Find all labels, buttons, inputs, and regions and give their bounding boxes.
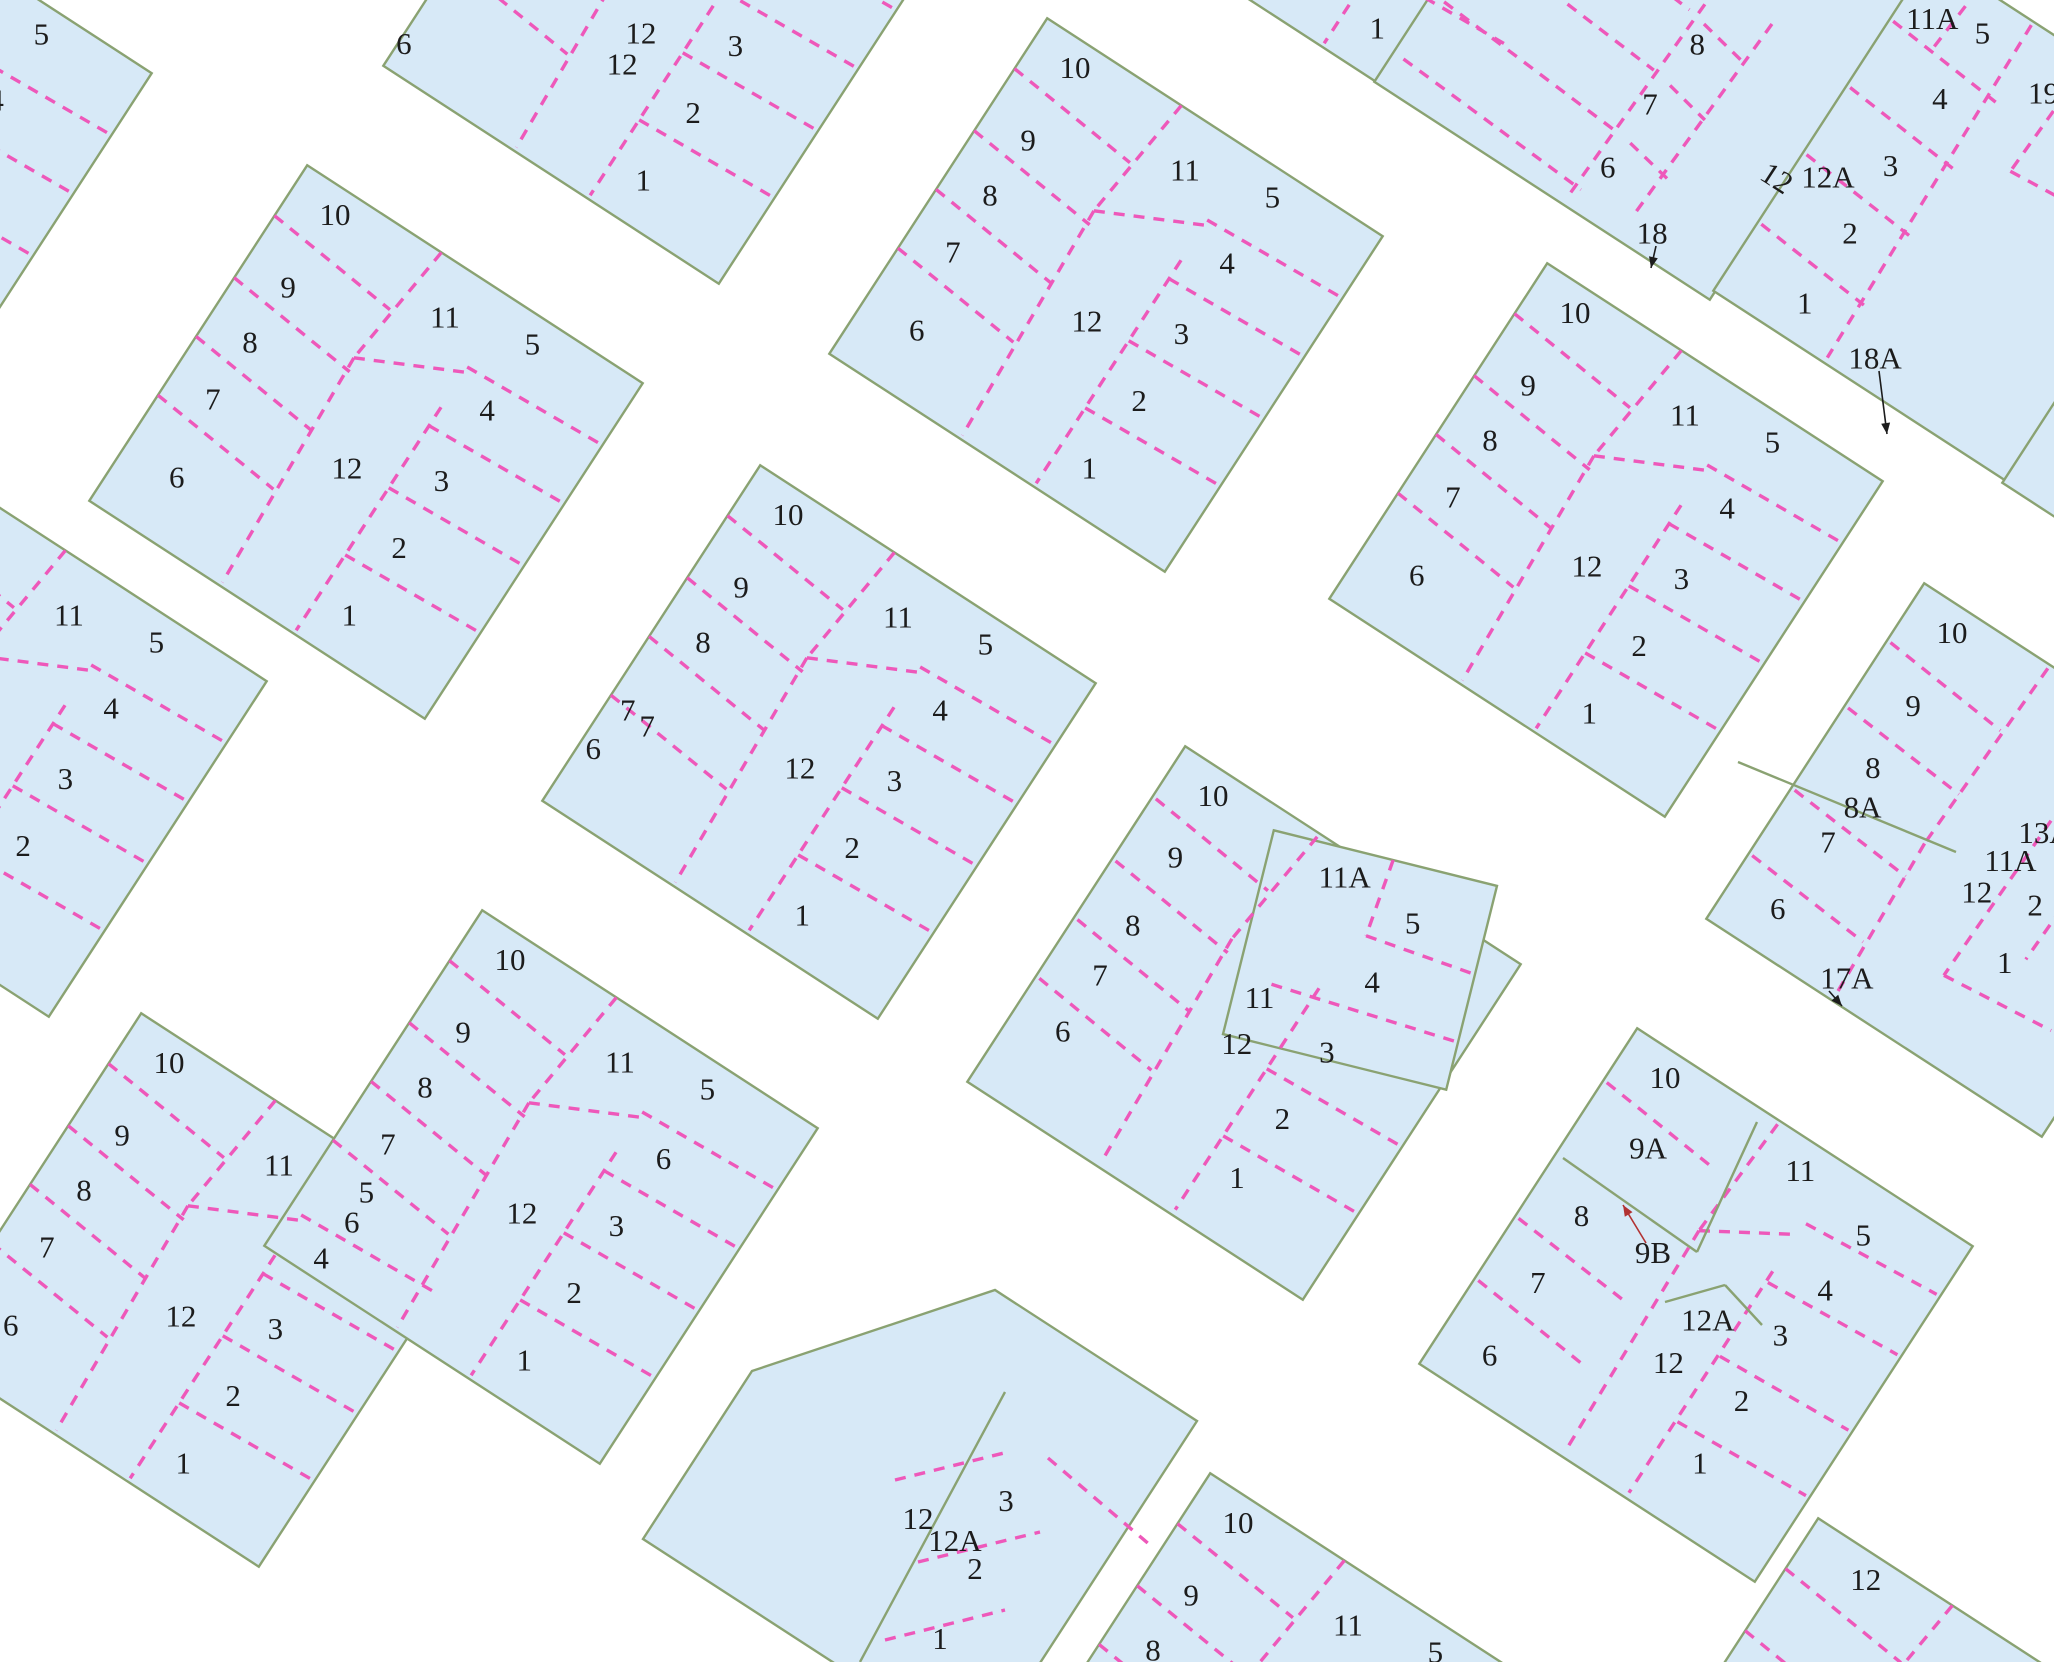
- lot-number-label: 6: [1600, 149, 1616, 184]
- lot-number-label: 1: [1997, 945, 2013, 980]
- parcel-block-top-a[interactable]: [383, 0, 936, 284]
- lot-number-label: 5: [1855, 1218, 1871, 1253]
- lot-number-label: 3: [434, 463, 450, 498]
- lot-number-label: 4: [479, 393, 495, 428]
- lot-number-label: 8: [76, 1172, 92, 1207]
- lot-number-label: 7: [639, 709, 655, 744]
- lot-number-label: 12: [1961, 875, 1992, 910]
- lot-number-label: 9: [1183, 1577, 1199, 1612]
- lot-number-label: 12: [1071, 304, 1102, 339]
- lot-number-label: 2: [1734, 1383, 1750, 1418]
- lot-number-label: 12A: [1801, 160, 1855, 195]
- lot-number-label: 8: [695, 624, 711, 659]
- lot-number-label: 17A: [1820, 961, 1874, 996]
- lot-number-label: 7: [1445, 479, 1461, 514]
- lot-number-label: 2: [967, 1551, 983, 1586]
- lot-number-label: 6: [1770, 891, 1786, 926]
- lot-number-label: 2: [1275, 1101, 1291, 1136]
- lot-number-label: 5: [1428, 1635, 1444, 1662]
- lot-number-label: 4: [932, 693, 948, 728]
- lot-number-label: 3: [887, 763, 903, 798]
- lot-number-label: 4: [1219, 246, 1235, 281]
- lot-number-label: 10: [1936, 615, 1967, 650]
- lot-number-label: 6: [344, 1204, 360, 1239]
- lot-number-label: 9B: [1635, 1235, 1671, 1270]
- lot-number-label: 3: [1883, 148, 1899, 183]
- lot-number-label: 10: [153, 1045, 184, 1080]
- lot-number-label: 12: [784, 751, 815, 786]
- lot-number-label: 7: [380, 1126, 396, 1161]
- lot-number-label: 12: [1221, 1026, 1252, 1061]
- lot-number-label: 11: [605, 1045, 635, 1080]
- lot-number-label: 6: [909, 312, 925, 347]
- lot-number-label: 7: [205, 381, 221, 416]
- lot-number-label: 5: [34, 17, 50, 52]
- lot-number-label: 11: [1170, 153, 1200, 188]
- lot-number-label: 1: [516, 1343, 532, 1378]
- lot-number-label: 8: [982, 177, 998, 212]
- lot-number-label: 10: [1649, 1060, 1680, 1095]
- lot-number-label: 1: [635, 163, 651, 198]
- lot-number-label: 6: [1409, 557, 1425, 592]
- lot-number-label: 8A: [1844, 790, 1883, 825]
- lot-number-label: 2: [1631, 628, 1647, 663]
- lot-number-label: 11: [883, 600, 913, 635]
- lot-number-label: 3: [268, 1311, 284, 1346]
- lot-number-label: 1: [1081, 451, 1097, 486]
- lot-number-label: 4: [0, 83, 4, 118]
- lot-number-label: 11: [430, 300, 460, 335]
- lot-number-label: 1: [341, 598, 357, 633]
- lot-number-label: 9: [1168, 840, 1184, 875]
- lot-number-label: 11: [264, 1148, 294, 1183]
- lot-number-label: 11A: [1984, 843, 2037, 878]
- lot-number-label: 5: [1265, 180, 1281, 215]
- lot-number-label: 19: [2028, 76, 2054, 111]
- lot-number-label: 7: [1820, 824, 1836, 859]
- lot-number-label: 5: [359, 1175, 375, 1210]
- lot-number-label: 10: [772, 497, 803, 532]
- lot-number-label: 7: [1092, 958, 1108, 993]
- lot-number-label: 4: [1719, 491, 1735, 526]
- lot-number-label: 6: [656, 1141, 672, 1176]
- lot-number-label: 5: [1765, 425, 1781, 460]
- lot-number-label: 8: [1125, 907, 1141, 942]
- lot-number-label: 6: [586, 731, 602, 766]
- lot-number-label: 3: [728, 28, 744, 63]
- lot-number-label: 9: [114, 1117, 130, 1152]
- lot-number-label: 1: [1369, 11, 1385, 46]
- lot-number-label: 11: [1245, 980, 1275, 1015]
- lot-number-label: 1: [175, 1446, 191, 1481]
- lot-number-label: 18: [1637, 215, 1668, 250]
- lot-number-label: 2: [15, 828, 31, 863]
- lot-number-label: 9: [733, 569, 749, 604]
- lot-number-label: 11A: [1906, 1, 1959, 36]
- parcel-block-top-b[interactable]: [829, 18, 1382, 571]
- lot-number-label: 8: [1574, 1198, 1590, 1233]
- lot-number-label: 11A: [1319, 860, 1372, 895]
- lot-number-label: 2: [566, 1275, 582, 1310]
- lot-number-label: 8: [1690, 26, 1706, 61]
- lot-number-label: 3: [1319, 1035, 1335, 1070]
- lot-number-label: 10: [1222, 1505, 1253, 1540]
- lot-number-label: 7: [39, 1229, 55, 1264]
- lot-number-label: 2: [2027, 887, 2043, 922]
- lot-number-label: 1: [1692, 1445, 1708, 1480]
- lot-number-label: 12: [1571, 549, 1602, 584]
- lot-number-label: 10: [319, 197, 350, 232]
- lot-number-label: 12: [506, 1196, 537, 1231]
- lot-number-label: 2: [1131, 383, 1147, 418]
- lot-number-label: 7: [1530, 1265, 1546, 1300]
- lot-number-label: 1: [1229, 1160, 1245, 1195]
- lot-number-label: 11: [1333, 1608, 1363, 1643]
- lot-number-label: 8: [1145, 1632, 1161, 1662]
- lot-number-label: 12A: [1681, 1303, 1735, 1338]
- lot-number-label: 10: [1059, 50, 1090, 85]
- lot-number-label: 1: [794, 898, 810, 933]
- lot-number-label: 9: [280, 269, 296, 304]
- lot-number-label: 11: [1670, 398, 1700, 433]
- lot-number-label: 3: [1773, 1318, 1789, 1353]
- lot-number-label: 3: [58, 761, 74, 796]
- lot-number-label: 1: [1581, 696, 1597, 731]
- lot-number-label: 7: [945, 234, 961, 269]
- lot-number-label: 12: [1850, 1562, 1881, 1597]
- lot-number-label: 7: [620, 692, 636, 727]
- map-canvas: 1098761211543211098761211543211210987612…: [0, 0, 2054, 1662]
- lot-number-label: 4: [1364, 964, 1380, 999]
- lot-number-label: 4: [1932, 81, 1948, 116]
- lot-number-label: 10: [494, 942, 525, 977]
- lot-number-label: 6: [1055, 1013, 1071, 1048]
- lot-number-label: 2: [844, 830, 860, 865]
- lot-number-label: 3: [1674, 561, 1690, 596]
- lot-number-label: 10: [1559, 295, 1590, 330]
- lot-number-label: 6: [1482, 1337, 1498, 1372]
- lot-number-label: 12: [1653, 1345, 1684, 1380]
- lot-number-label: 1: [1797, 285, 1813, 320]
- lot-number-label: 9: [1020, 122, 1036, 157]
- parcel-map: 1098761211543211098761211543211210987612…: [0, 0, 2054, 1662]
- lot-number-label: 11: [1785, 1153, 1815, 1188]
- lot-number-label: 4: [313, 1241, 329, 1276]
- lot-number-label: 6: [169, 459, 185, 494]
- parcel-block-row2-f[interactable]: [542, 465, 1095, 1018]
- lot-number-label: 11: [54, 598, 84, 633]
- lot-number-label: 4: [1817, 1273, 1833, 1308]
- lot-number-label: 5: [978, 627, 994, 662]
- lot-number-label: 9A: [1629, 1130, 1668, 1165]
- lot-number-label: 18A: [1848, 340, 1902, 375]
- lot-number-label: 5: [700, 1072, 716, 1107]
- lot-number-label: 5: [1405, 905, 1421, 940]
- lot-number-label: 2: [391, 530, 407, 565]
- lot-number-label: 2: [685, 95, 701, 130]
- lot-number-label: 8: [417, 1069, 433, 1104]
- lot-number-label: 5: [525, 327, 541, 362]
- lot-number-label: 3: [609, 1208, 625, 1243]
- parcel-block-nw-partial[interactable]: [0, 0, 152, 409]
- lot-number-label: 9: [455, 1014, 471, 1049]
- lot-number-label: 5: [149, 625, 165, 660]
- lot-number-label: 3: [1174, 316, 1190, 351]
- lot-number-label: 8: [1865, 750, 1881, 785]
- lot-number-label: 9: [1905, 688, 1921, 723]
- lot-number-label: 7: [1642, 86, 1658, 121]
- lot-number-label: 10: [1197, 778, 1228, 813]
- lot-number-label: 8: [1482, 422, 1498, 457]
- lot-number-label: 8: [242, 324, 258, 359]
- parcel-block-se-n[interactable]: [1600, 1518, 2054, 1662]
- lot-number-label: 6: [396, 26, 412, 61]
- parcel-block-s-l2[interactable]: [643, 1290, 1197, 1662]
- lot-number-label: 2: [1842, 216, 1858, 251]
- annotation-arrow-head-18A: [1881, 423, 1890, 435]
- lot-number-label: 9: [1520, 367, 1536, 402]
- lot-number-label: 6: [3, 1307, 19, 1342]
- lot-number-label: 4: [103, 691, 119, 726]
- lot-number-label: 5: [1975, 16, 1991, 51]
- lot-number-label: 12: [165, 1299, 196, 1334]
- lot-number-label: 12: [331, 451, 362, 486]
- lot-number-label: 1: [932, 1621, 948, 1656]
- lot-number-label: 3: [998, 1483, 1014, 1518]
- lot-number-label: 12: [607, 46, 638, 81]
- lot-number-label: 2: [225, 1378, 241, 1413]
